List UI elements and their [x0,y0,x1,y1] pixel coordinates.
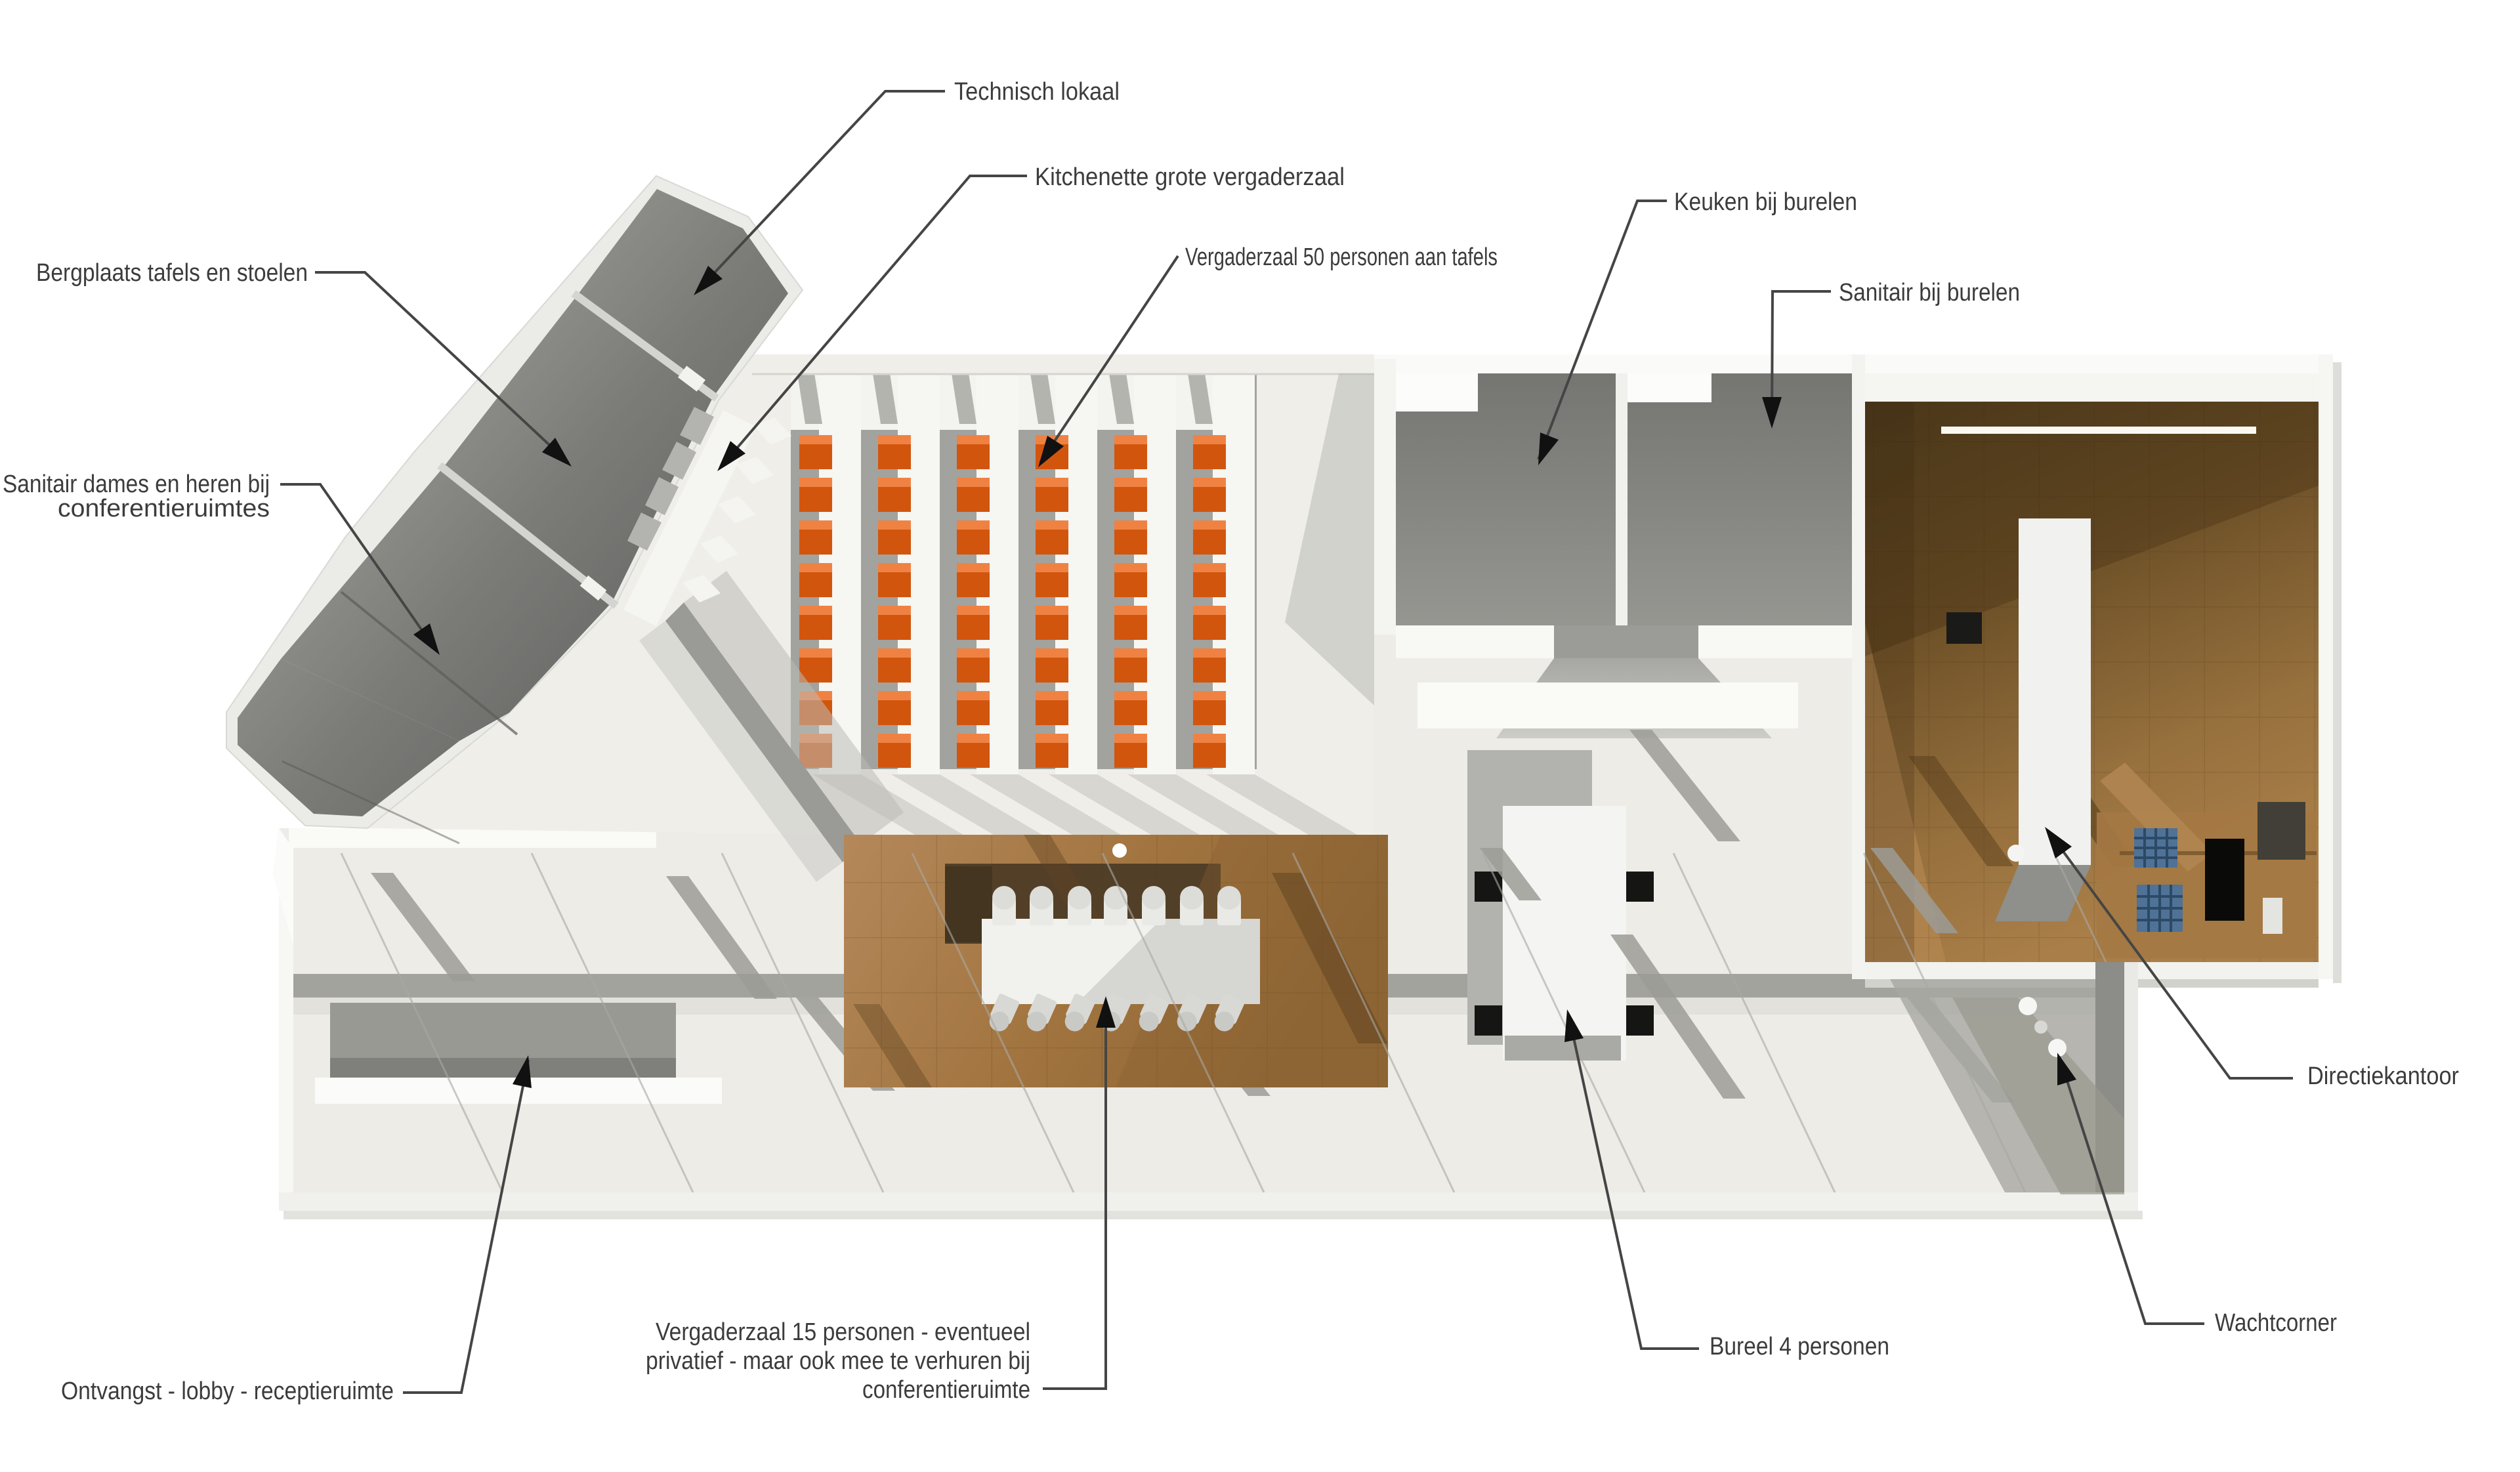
svg-text:Wachtcorner: Wachtcorner [2215,1309,2337,1337]
svg-text:Ontvangst - lobby - receptieru: Ontvangst - lobby - receptieruimte [61,1377,394,1405]
svg-text:conferentieruimtes: conferentieruimtes [58,495,270,522]
svg-text:conferentieruimte: conferentieruimte [862,1376,1030,1404]
svg-text:Directiekantoor: Directiekantoor [2307,1062,2459,1090]
svg-text:Kitchenette grote vergaderzaal: Kitchenette grote vergaderzaal [1035,163,1345,191]
svg-text:Bureel 4 personen: Bureel 4 personen [1710,1333,1889,1360]
svg-text:Bergplaats tafels en stoelen: Bergplaats tafels en stoelen [36,259,308,287]
svg-text:privatief - maar ook mee te ve: privatief - maar ook mee te verhuren bij [646,1347,1030,1375]
svg-text:Vergaderzaal 15 personen - eve: Vergaderzaal 15 personen - eventueel [656,1318,1030,1346]
svg-text:Vergaderzaal 50 personen aan t: Vergaderzaal 50 personen aan tafels [1185,243,1498,271]
svg-text:Technisch lokaal: Technisch lokaal [954,78,1120,106]
svg-text:Sanitair dames en heren bij: Sanitair dames en heren bij [3,471,270,498]
svg-text:Keuken bij burelen: Keuken bij burelen [1674,188,1857,216]
svg-text:Sanitair bij burelen: Sanitair bij burelen [1839,279,2020,306]
